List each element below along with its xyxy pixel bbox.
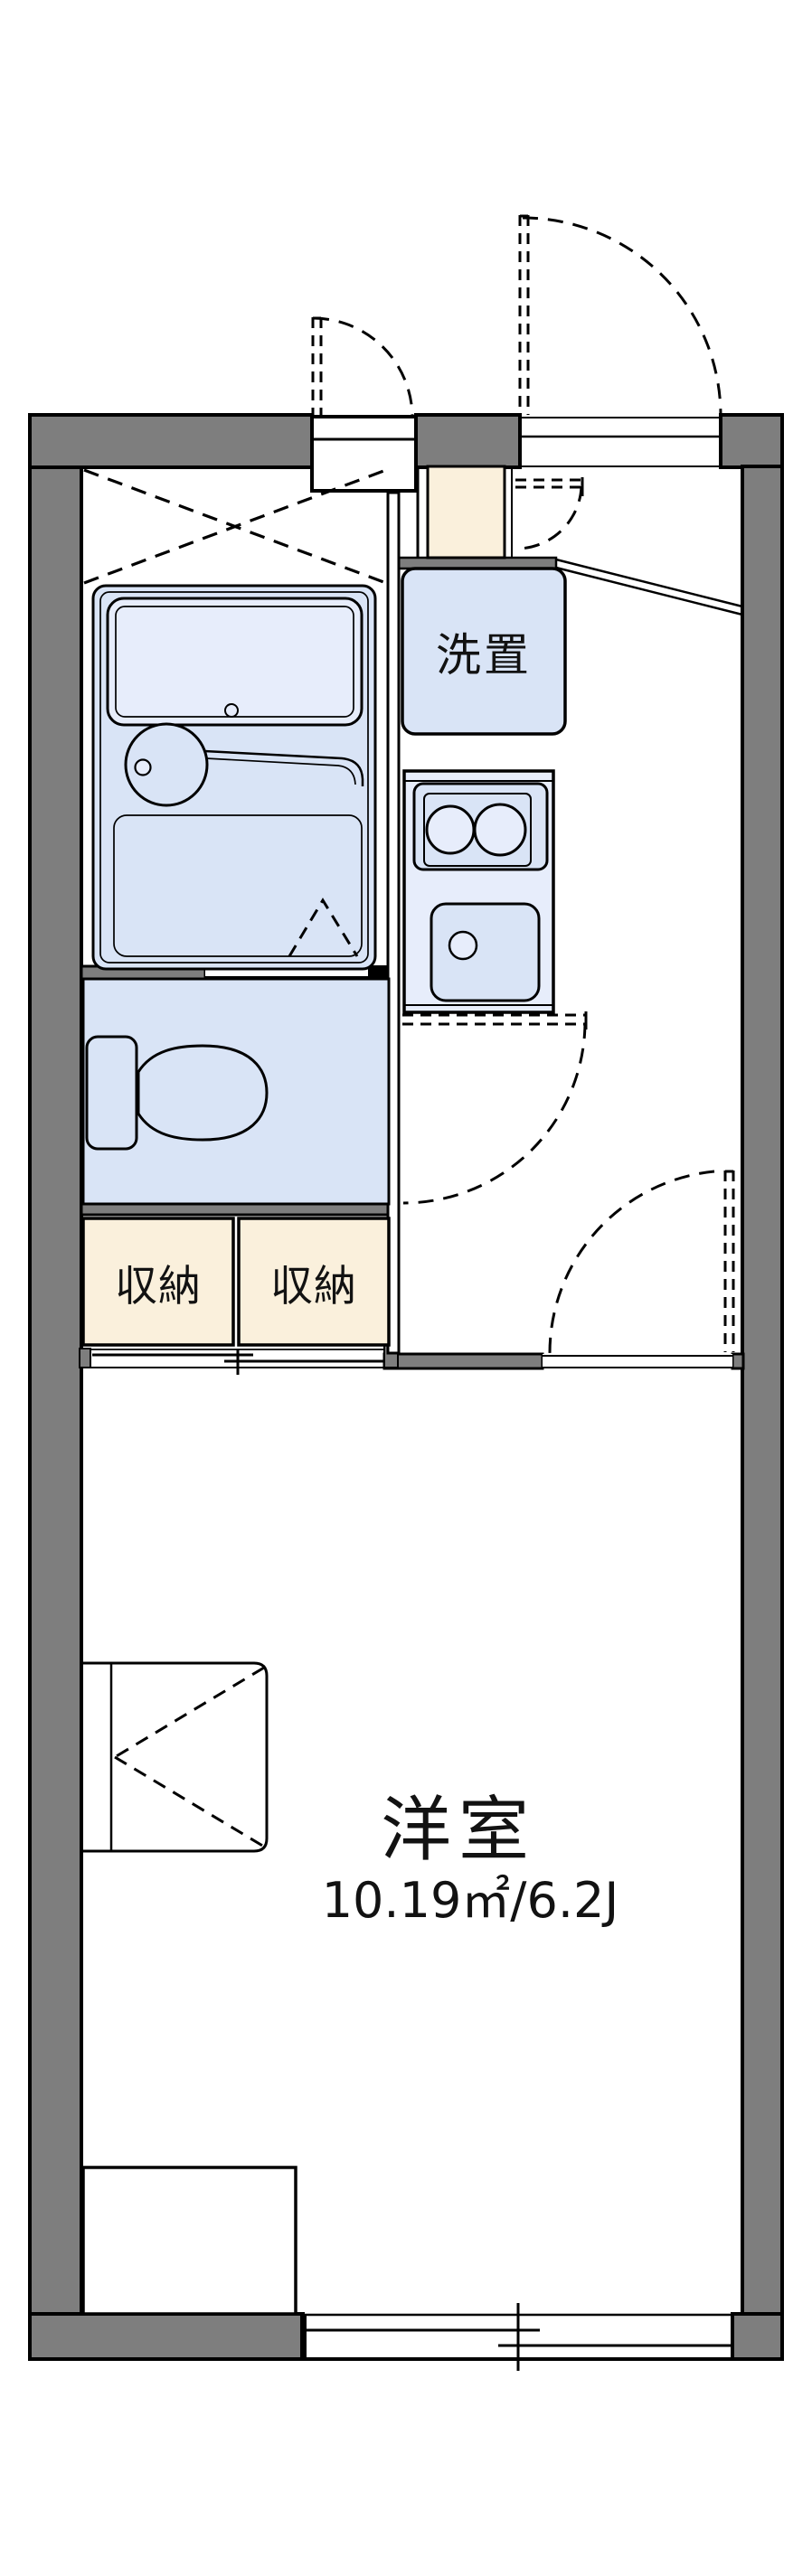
basin-drain <box>136 760 151 776</box>
sink-drain <box>449 932 477 959</box>
burner-left <box>427 806 474 853</box>
wall-right <box>742 466 782 2317</box>
wall-bottom <box>30 2314 303 2359</box>
wall-top-b <box>416 415 520 467</box>
balcony-window <box>300 2303 734 2371</box>
storage-sliding-doors <box>83 1349 387 1375</box>
wall-top-a <box>30 415 312 467</box>
bath-window-recess <box>312 417 416 491</box>
entrance-opening <box>520 417 721 466</box>
kitchen-hall-door <box>402 1015 586 1203</box>
toilet-tank <box>87 1037 137 1149</box>
entrance-step-line <box>556 559 742 615</box>
floor-plan: 洗置 収納 収納 洋室 10.19㎡/6.2J <box>0 0 812 2576</box>
entrance-hall-door <box>515 480 581 549</box>
sink <box>431 904 539 1001</box>
wall-left <box>30 415 81 2359</box>
burner-right <box>475 804 525 855</box>
toilet-bowl <box>138 1046 267 1140</box>
toilet-room <box>83 979 389 1204</box>
room-name-label: 洋室 <box>332 1781 585 1867</box>
entrance-storage-box <box>428 466 512 558</box>
kitchen-unit <box>404 771 553 1012</box>
entrance-door <box>520 215 721 416</box>
room-door-opening <box>543 1354 732 1368</box>
washer-space-label: 洗置 <box>402 569 565 734</box>
room-door <box>550 1170 733 1353</box>
bottom-cabinet <box>83 2167 296 2314</box>
wall-slider-stub-left <box>80 1349 90 1368</box>
room-area-label: 10.19㎡/6.2J <box>289 1864 651 1927</box>
wall-genkan-band <box>398 558 556 569</box>
bathtub-drain <box>225 704 238 717</box>
wall-hall-bottom-stub <box>732 1354 743 1368</box>
wall-hall-bottom <box>384 1354 543 1368</box>
wall-bottom-right-block <box>732 2314 782 2359</box>
wall-toilet-bottom-band <box>81 1204 389 1215</box>
storage-left-label: 収納 <box>83 1218 233 1345</box>
bath-window-door <box>313 317 412 417</box>
storage-right-label: 収納 <box>239 1218 389 1345</box>
wall-top-right-block <box>721 415 782 467</box>
room-furniture <box>83 1663 296 2314</box>
unit-bath <box>93 586 375 969</box>
